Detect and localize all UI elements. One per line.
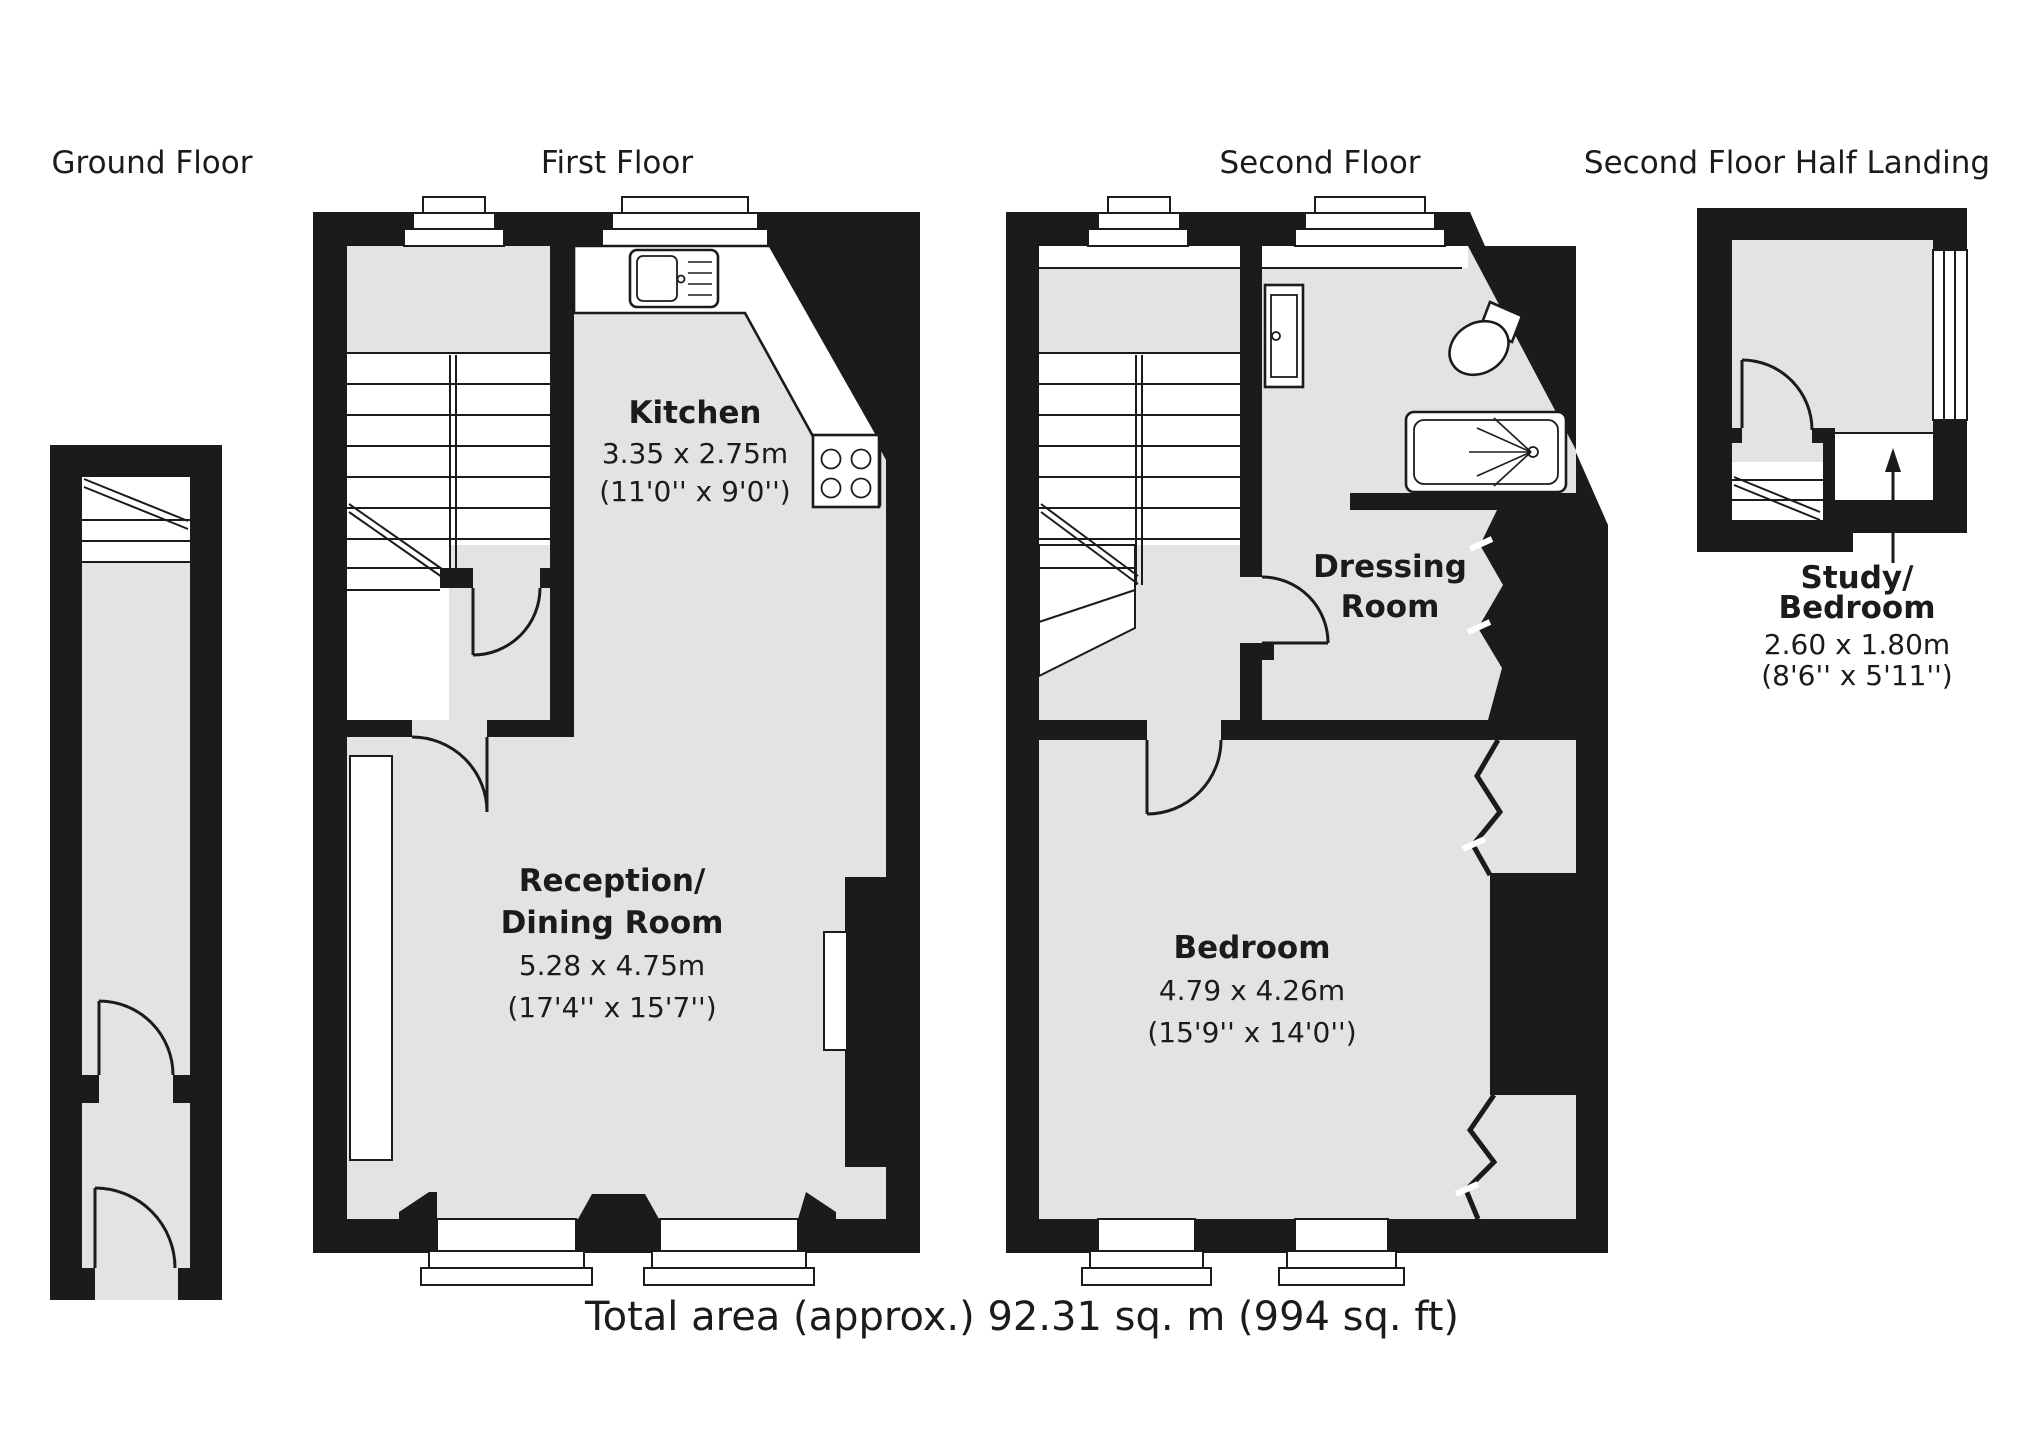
window-bedroom-left — [1082, 1219, 1211, 1285]
study-divider-wall — [1823, 428, 1835, 520]
bedroom-chimney-block — [1490, 873, 1608, 1095]
window-kitchen — [602, 197, 768, 246]
hob-icon — [813, 435, 879, 507]
study-size-imperial: (8'6'' x 5'11'') — [1761, 659, 1952, 692]
half-landing-stairs — [1732, 462, 1823, 520]
bedroom-size-metric: 4.79 x 4.26m — [1159, 974, 1345, 1007]
dressing-bedroom-wall — [1221, 720, 1576, 740]
reception-alcove — [350, 756, 392, 1160]
window-bedroom-right — [1279, 1219, 1404, 1285]
window-first-floor-left — [404, 197, 504, 246]
kitchen-sink-icon — [630, 250, 718, 307]
total-area-label: Total area (approx.) 92.31 sq. m (994 sq… — [584, 1294, 1459, 1340]
second-floor-plan: Dressing Room Bedroom 4.79 x 4.26m (15'9… — [1006, 197, 1608, 1285]
study-floor-entry — [1732, 433, 1823, 462]
reception-size-imperial: (17'4'' x 15'7'') — [507, 991, 716, 1024]
floorplan-drawing: Ground Floor First Floor Second Floor Se… — [0, 0, 2025, 1431]
room-label-dressing-1: Dressing — [1313, 549, 1467, 585]
reception-size-metric: 5.28 x 4.75m — [519, 949, 705, 982]
stair-kitchen-wall — [550, 246, 574, 737]
window-second-stairs — [1088, 197, 1188, 246]
study-recess — [1835, 433, 1933, 500]
floorplan-page: Ground Floor First Floor Second Floor Se… — [0, 0, 2025, 1431]
kitchen-size-imperial: (11'0'' x 9'0'') — [599, 475, 790, 508]
study-floor — [1732, 240, 1933, 433]
floor-label-second: Second Floor — [1219, 145, 1420, 181]
stair-bathroom-wall — [1240, 246, 1262, 577]
bathtub-icon — [1406, 412, 1566, 492]
window-reception-left — [421, 1219, 592, 1285]
room-label-reception-2: Dining Room — [501, 905, 724, 941]
room-label-dressing-2: Room — [1341, 589, 1440, 625]
window-study — [1933, 250, 1967, 420]
kitchen-size-metric: 3.35 x 2.75m — [602, 437, 788, 470]
window-bathroom — [1295, 197, 1445, 246]
hallway-stairs — [82, 477, 190, 562]
landing-bedroom-wall-left — [1006, 720, 1147, 740]
study-size-metric: 2.60 x 1.80m — [1764, 628, 1950, 661]
floor-label-ground: Ground Floor — [51, 145, 252, 181]
half-landing-plan: Study/ Bedroom 2.60 x 1.80m (8'6'' x 5'1… — [1697, 208, 1967, 692]
fireplace-recess — [824, 932, 847, 1050]
bay-pier-middle — [578, 1194, 659, 1219]
room-label-study-2: Bedroom — [1778, 590, 1935, 626]
room-label-reception-1: Reception/ — [519, 863, 706, 899]
room-label-kitchen: Kitchen — [628, 395, 761, 431]
floor-label-half-landing: Second Floor Half Landing — [1584, 145, 1990, 181]
wash-basin-icon — [1265, 285, 1303, 387]
first-floor-plan: Kitchen 3.35 x 2.75m (11'0'' x 9'0'') Re… — [313, 197, 920, 1285]
bedroom-size-imperial: (15'9'' x 14'0'') — [1147, 1016, 1356, 1049]
bathroom-dressing-wall — [1350, 493, 1576, 510]
window-reception-right — [644, 1219, 814, 1285]
room-label-bedroom: Bedroom — [1173, 930, 1330, 966]
floor-label-first: First Floor — [541, 145, 693, 181]
ground-floor-plan — [50, 445, 222, 1300]
hallway-floor — [82, 477, 190, 1268]
